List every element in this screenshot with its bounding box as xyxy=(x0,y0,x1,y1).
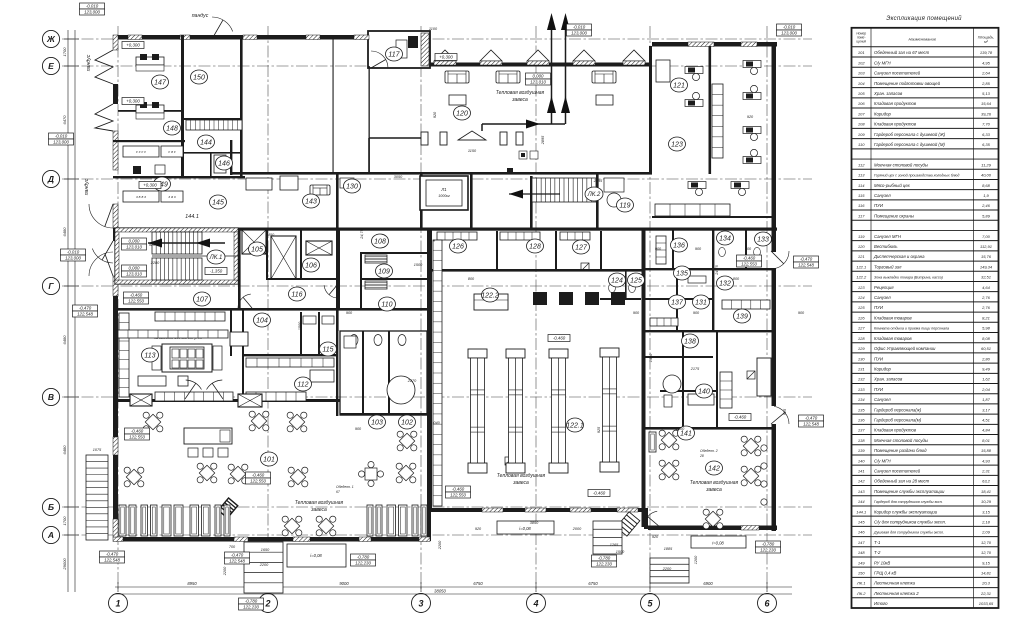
svg-text:щения: щения xyxy=(856,40,866,44)
svg-text:8,01: 8,01 xyxy=(982,438,990,443)
svg-text:С/у МГН: С/у МГН xyxy=(874,60,892,65)
svg-text:Моечная столовой посуды: Моечная столовой посуды xyxy=(874,438,929,443)
svg-text:107: 107 xyxy=(196,297,209,304)
svg-text:Гардероб персонала с душевой (: Гардероб персонала с душевой (Ж) xyxy=(874,132,946,137)
svg-text:ПУИ: ПУИ xyxy=(874,356,884,361)
svg-text:103: 103 xyxy=(858,71,865,76)
svg-text:3050: 3050 xyxy=(394,175,403,179)
svg-text:6750: 6750 xyxy=(588,581,598,586)
svg-text:-0,470: -0,470 xyxy=(79,306,92,311)
svg-text:2200: 2200 xyxy=(259,563,269,567)
svg-text:2200: 2200 xyxy=(438,540,442,550)
svg-text:132: 132 xyxy=(858,377,865,382)
svg-text:7,70: 7,70 xyxy=(982,122,991,127)
svg-text:0,000: 0,000 xyxy=(129,266,141,271)
svg-text:Помещение раздачи блюд: Помещение раздачи блюд xyxy=(874,448,927,453)
svg-text:123,010: 123,010 xyxy=(126,272,142,277)
svg-text:900: 900 xyxy=(633,311,640,315)
svg-text:6,33: 6,33 xyxy=(982,132,991,137)
svg-text:144.1: 144.1 xyxy=(185,214,199,220)
svg-text:-1,350: -1,350 xyxy=(210,269,223,274)
svg-text:920: 920 xyxy=(652,535,659,539)
svg-text:Санузел: Санузел xyxy=(874,397,891,402)
svg-text:2895: 2895 xyxy=(541,135,545,145)
svg-text:Лестничная клетка: Лестничная клетка xyxy=(873,581,916,586)
svg-text:завеса: завеса xyxy=(512,480,529,486)
svg-text:3,17: 3,17 xyxy=(982,407,991,412)
svg-text:122,230: 122,230 xyxy=(760,548,776,553)
svg-text:115: 115 xyxy=(322,347,333,354)
svg-text:137: 137 xyxy=(671,300,684,307)
svg-text:920: 920 xyxy=(433,111,437,118)
svg-text:6750: 6750 xyxy=(473,581,483,586)
svg-text:134: 134 xyxy=(858,397,865,402)
svg-text:136: 136 xyxy=(858,417,865,422)
svg-text:-0,010: -0,010 xyxy=(573,25,586,30)
svg-text:2,09: 2,09 xyxy=(981,530,991,535)
svg-text:-0,470: -0,470 xyxy=(231,553,244,558)
svg-text:3: 3 xyxy=(418,598,423,608)
svg-text:123,000: 123,000 xyxy=(65,256,81,261)
svg-text:105: 105 xyxy=(251,247,263,254)
svg-text:1500: 1500 xyxy=(298,321,302,330)
svg-text:144: 144 xyxy=(200,140,212,147)
svg-text:Помещение охраны: Помещение охраны xyxy=(874,213,915,218)
svg-text:-0,470: -0,470 xyxy=(106,552,119,557)
svg-text:109: 109 xyxy=(858,132,865,137)
svg-text:В: В xyxy=(48,392,54,402)
svg-text:142: 142 xyxy=(858,479,865,484)
svg-text:123,000: 123,000 xyxy=(571,31,587,36)
svg-text:28: 28 xyxy=(699,454,704,458)
svg-text:101: 101 xyxy=(858,50,865,55)
svg-text:Тепловая воздушная: Тепловая воздушная xyxy=(497,473,546,479)
svg-text:с с с с: с с с с xyxy=(136,150,146,154)
svg-text:6480: 6480 xyxy=(62,445,67,455)
svg-text:122,550: 122,550 xyxy=(450,493,466,498)
svg-text:Торговый зал: Торговый зал xyxy=(874,264,902,269)
svg-text:22,31: 22,31 xyxy=(980,591,991,596)
svg-text:140: 140 xyxy=(858,458,865,463)
svg-text:150: 150 xyxy=(193,75,205,82)
svg-text:2200: 2200 xyxy=(223,566,227,576)
svg-text:ПУИ: ПУИ xyxy=(874,387,884,392)
svg-text:Коридор: Коридор xyxy=(874,366,891,371)
svg-text:920: 920 xyxy=(475,527,482,531)
svg-text:920: 920 xyxy=(747,115,754,119)
svg-text:32,51: 32,51 xyxy=(981,275,991,280)
svg-text:130: 130 xyxy=(346,184,358,191)
svg-text:3850: 3850 xyxy=(530,521,539,525)
svg-text:136: 136 xyxy=(673,243,685,250)
svg-text:-0,010: -0,010 xyxy=(783,25,796,30)
svg-text:101: 101 xyxy=(263,457,275,464)
svg-text:143: 143 xyxy=(305,199,317,206)
svg-text:38050: 38050 xyxy=(434,589,446,594)
svg-text:63,2: 63,2 xyxy=(982,479,991,484)
svg-text:5,89: 5,89 xyxy=(982,213,991,218)
svg-text:Санузел посетителей: Санузел посетителей xyxy=(874,71,921,76)
svg-text:i=0,08: i=0,08 xyxy=(519,526,531,531)
svg-text:ЛК.1: ЛК.1 xyxy=(209,255,223,261)
svg-text:Комната отдыха и приема пищи п: Комната отдыха и приема пищи персонала xyxy=(874,327,949,331)
svg-text:С/у МГН: С/у МГН xyxy=(874,458,892,463)
svg-text:122,548: 122,548 xyxy=(803,422,819,427)
svg-text:2,46: 2,46 xyxy=(981,203,991,208)
svg-text:1400: 1400 xyxy=(649,353,653,362)
svg-text:1000кг: 1000кг xyxy=(438,194,450,198)
svg-text:114: 114 xyxy=(858,183,865,188)
svg-text:122,548: 122,548 xyxy=(798,263,814,268)
svg-text:2,85: 2,85 xyxy=(981,81,991,86)
svg-text:112: 112 xyxy=(858,162,865,167)
svg-text:29000: 29000 xyxy=(62,558,67,571)
svg-text:1885: 1885 xyxy=(664,547,673,551)
svg-text:900: 900 xyxy=(745,247,752,251)
svg-text:4,93: 4,93 xyxy=(982,458,991,463)
svg-text:1150: 1150 xyxy=(468,149,477,153)
svg-text:Помещение службы эксплуатации: Помещение службы эксплуатации xyxy=(874,489,945,494)
svg-text:122,548: 122,548 xyxy=(77,312,93,317)
svg-text:144: 144 xyxy=(858,499,865,504)
svg-text:5,98: 5,98 xyxy=(982,326,991,331)
svg-text:Санузел МГН: Санузел МГН xyxy=(874,234,902,239)
svg-text:2,80: 2,80 xyxy=(981,356,991,361)
svg-text:116: 116 xyxy=(858,203,865,208)
svg-text:119: 119 xyxy=(619,203,630,210)
svg-text:110: 110 xyxy=(858,142,865,147)
svg-text:119: 119 xyxy=(858,234,865,239)
svg-text:ЛК.2: ЛК.2 xyxy=(856,591,866,596)
svg-text:122.1: 122.1 xyxy=(566,423,584,430)
svg-text:122,230: 122,230 xyxy=(355,561,371,566)
svg-text:2270: 2270 xyxy=(407,379,417,383)
svg-text:134: 134 xyxy=(719,236,731,243)
svg-text:122,548: 122,548 xyxy=(104,558,120,563)
svg-text:123,000: 123,000 xyxy=(53,140,69,145)
svg-text:140: 140 xyxy=(698,389,710,396)
svg-text:121: 121 xyxy=(673,83,685,90)
svg-text:125: 125 xyxy=(630,278,642,285)
svg-text:1,9: 1,9 xyxy=(983,193,989,198)
svg-text:Тепловая воздушная: Тепловая воздушная xyxy=(496,90,545,96)
svg-text:24,75: 24,75 xyxy=(715,264,719,275)
svg-text:1265: 1265 xyxy=(610,543,619,547)
svg-text:1650: 1650 xyxy=(261,548,270,552)
svg-text:Кладовая продуктов: Кладовая продуктов xyxy=(874,122,917,127)
svg-text:6480: 6480 xyxy=(62,335,67,345)
svg-text:2295: 2295 xyxy=(593,179,603,183)
svg-text:108: 108 xyxy=(374,239,386,246)
svg-text:1700: 1700 xyxy=(62,516,67,526)
svg-text:А: А xyxy=(47,530,54,540)
svg-text:900: 900 xyxy=(346,311,353,315)
svg-text:128: 128 xyxy=(858,336,865,341)
svg-text:14,81: 14,81 xyxy=(981,571,991,576)
svg-text:900: 900 xyxy=(798,311,805,315)
svg-text:-0,780: -0,780 xyxy=(598,556,611,561)
svg-text:129: 129 xyxy=(858,346,865,351)
svg-text:123: 123 xyxy=(858,285,865,290)
svg-text:1: 1 xyxy=(115,598,120,608)
svg-text:3,15: 3,15 xyxy=(982,509,991,514)
svg-text:с в с: с в с xyxy=(168,150,176,154)
svg-text:Коридор службы эксплуатации: Коридор службы эксплуатации xyxy=(874,509,938,514)
svg-text:2175: 2175 xyxy=(690,367,700,371)
svg-text:завеса: завеса xyxy=(705,487,722,493)
svg-text:123,010: 123,010 xyxy=(530,80,546,85)
svg-text:141: 141 xyxy=(680,431,692,438)
svg-text:125: 125 xyxy=(858,305,865,310)
svg-text:4,64: 4,64 xyxy=(982,285,991,290)
svg-text:12,70: 12,70 xyxy=(981,550,992,555)
svg-text:2,76: 2,76 xyxy=(981,305,991,310)
svg-text:завеса: завеса xyxy=(511,97,528,103)
svg-text:6,35: 6,35 xyxy=(982,142,991,147)
svg-text:2,04: 2,04 xyxy=(981,387,991,392)
svg-text:150: 150 xyxy=(858,571,865,576)
svg-text:117: 117 xyxy=(858,213,865,218)
svg-text:Л1: Л1 xyxy=(440,187,446,192)
svg-text:ПУИ: ПУИ xyxy=(874,203,884,208)
svg-text:103: 103 xyxy=(371,420,383,427)
svg-text:128: 128 xyxy=(529,244,541,251)
svg-text:148: 148 xyxy=(166,126,178,133)
svg-text:144.1: 144.1 xyxy=(856,509,866,514)
svg-text:Т-1: Т-1 xyxy=(874,540,881,545)
svg-text:5,13: 5,13 xyxy=(982,91,991,96)
svg-text:122.2: 122.2 xyxy=(481,293,499,300)
svg-text:-0,780: -0,780 xyxy=(762,542,775,547)
svg-text:147: 147 xyxy=(154,80,167,87)
svg-text:15,76: 15,76 xyxy=(981,254,992,259)
svg-text:7,00: 7,00 xyxy=(982,234,991,239)
svg-text:130: 130 xyxy=(858,356,865,361)
svg-text:Санузел: Санузел xyxy=(874,193,891,198)
svg-text:39,26: 39,26 xyxy=(981,111,992,116)
svg-text:139: 139 xyxy=(858,448,865,453)
svg-text:120: 120 xyxy=(456,111,468,118)
svg-text:Г: Г xyxy=(48,281,54,291)
svg-text:1,87: 1,87 xyxy=(982,397,991,402)
svg-text:Д: Д xyxy=(47,174,54,184)
svg-text:пандус: пандус xyxy=(84,178,90,195)
svg-text:8,68: 8,68 xyxy=(982,183,991,188)
svg-text:6480: 6480 xyxy=(62,227,67,237)
svg-text:Наименование: Наименование xyxy=(908,37,936,42)
svg-text:2850: 2850 xyxy=(265,233,275,237)
svg-text:102: 102 xyxy=(858,60,865,65)
svg-text:123: 123 xyxy=(671,142,683,149)
svg-text:Кладовая продуктов: Кладовая продуктов xyxy=(874,101,917,106)
svg-text:122,550: 122,550 xyxy=(250,479,266,484)
svg-text:-0,470: -0,470 xyxy=(805,416,818,421)
svg-text:Душевая для сотрудников службы: Душевая для сотрудников службы экспл. xyxy=(873,531,944,535)
svg-text:122.1: 122.1 xyxy=(856,264,866,269)
svg-text:Горячий цех с зоной производст: Горячий цех с зоной производства холодны… xyxy=(874,174,959,178)
svg-text:1,040: 1,040 xyxy=(430,421,440,425)
svg-text:Моечная столовой посуды: Моечная столовой посуды xyxy=(874,162,929,167)
svg-text:40,00: 40,00 xyxy=(981,173,992,178)
svg-text:105: 105 xyxy=(858,91,865,96)
svg-text:Итого: Итого xyxy=(874,601,888,606)
svg-text:Вестибюль: Вестибюль xyxy=(874,244,898,249)
svg-text:122,550: 122,550 xyxy=(129,435,145,440)
svg-text:123,000: 123,000 xyxy=(781,31,797,36)
svg-text:124: 124 xyxy=(858,295,865,300)
svg-text:-0,780: -0,780 xyxy=(245,599,258,604)
svg-text:Хран. запасов: Хран. запасов xyxy=(873,377,903,382)
svg-text:Кладовая товаров: Кладовая товаров xyxy=(874,336,912,341)
svg-text:122,230: 122,230 xyxy=(596,562,612,567)
svg-text:133: 133 xyxy=(757,237,769,244)
svg-text:120: 120 xyxy=(858,244,865,249)
svg-text:-0,460: -0,460 xyxy=(734,415,747,420)
svg-text:Т-2: Т-2 xyxy=(874,550,881,555)
svg-text:-0,010: -0,010 xyxy=(55,134,68,139)
svg-text:122.2: 122.2 xyxy=(856,275,867,280)
svg-text:900: 900 xyxy=(655,247,662,251)
svg-text:2200: 2200 xyxy=(662,567,672,571)
svg-text:Зона выкладки товара (Витрина,: Зона выкладки товара (Витрина, касса) xyxy=(874,276,943,280)
svg-text:124: 124 xyxy=(611,278,623,285)
svg-text:пандус: пандус xyxy=(192,13,209,19)
svg-text:60,51: 60,51 xyxy=(981,346,991,351)
svg-text:4: 4 xyxy=(532,598,538,608)
svg-text:Офис Управляющей компании: Офис Управляющей компании xyxy=(874,346,936,351)
svg-text:12,70: 12,70 xyxy=(981,540,992,545)
svg-text:1500: 1500 xyxy=(616,550,625,554)
svg-text:107: 107 xyxy=(858,111,865,116)
svg-text:920: 920 xyxy=(149,243,156,247)
svg-text:Е: Е xyxy=(48,61,54,71)
svg-text:112,91: 112,91 xyxy=(980,244,992,249)
svg-text:800: 800 xyxy=(468,277,475,281)
svg-text:6900: 6900 xyxy=(703,581,713,586)
svg-text:121: 121 xyxy=(858,254,865,259)
svg-text:Санузел: Санузел xyxy=(874,295,891,300)
svg-text:-0,460: -0,460 xyxy=(553,336,566,341)
svg-text:з а з: з а з xyxy=(167,195,176,199)
svg-text:ЛК.1: ЛК.1 xyxy=(856,581,865,586)
svg-text:Гардероб персонала(м): Гардероб персонала(м) xyxy=(874,417,922,422)
svg-text:138: 138 xyxy=(684,339,696,346)
svg-text:102: 102 xyxy=(401,420,413,427)
svg-text:149: 149 xyxy=(858,560,865,565)
svg-text:пандус: пандус xyxy=(86,54,92,71)
svg-text:Б: Б xyxy=(48,502,54,512)
svg-text:123,010: 123,010 xyxy=(126,245,142,250)
svg-text:109: 109 xyxy=(378,269,390,276)
svg-text:1300: 1300 xyxy=(676,427,685,431)
svg-text:Гардероб персонала с душевой (: Гардероб персонала с душевой (М) xyxy=(874,142,945,147)
svg-text:122,230: 122,230 xyxy=(243,605,259,610)
svg-text:133: 133 xyxy=(858,387,865,392)
svg-text:127: 127 xyxy=(575,245,588,252)
svg-text:9,15: 9,15 xyxy=(982,560,991,565)
svg-text:ЛК.2: ЛК.2 xyxy=(587,192,601,198)
svg-text:106: 106 xyxy=(305,263,317,270)
svg-text:925: 925 xyxy=(783,408,787,415)
svg-text:142: 142 xyxy=(708,466,720,473)
svg-text:1700: 1700 xyxy=(62,47,67,57)
svg-text:2,31: 2,31 xyxy=(981,468,990,473)
svg-text:122,550: 122,550 xyxy=(128,299,144,304)
svg-text:113: 113 xyxy=(858,173,865,178)
svg-text:900: 900 xyxy=(355,427,362,431)
svg-text:0,000: 0,000 xyxy=(129,239,141,244)
svg-text:Гардероб для сотрудников служб: Гардероб для сотрудников службы эксп. xyxy=(874,500,943,504)
svg-text:1033,65: 1033,65 xyxy=(979,601,994,606)
svg-text:8,21: 8,21 xyxy=(982,315,990,320)
svg-text:Лестничная клетка 2: Лестничная клетка 2 xyxy=(873,591,919,596)
svg-text:113: 113 xyxy=(144,353,155,360)
svg-text:1500: 1500 xyxy=(414,263,423,267)
svg-text:122,548: 122,548 xyxy=(229,559,245,564)
svg-text:-0,010: -0,010 xyxy=(86,4,99,9)
svg-text:С/у для сотрудников службы экс: С/у для сотрудников службы экспл. xyxy=(874,520,946,525)
svg-text:1075: 1075 xyxy=(93,448,102,452)
svg-text:Тепловая воздушная: Тепловая воздушная xyxy=(295,500,344,506)
svg-text:112: 112 xyxy=(297,382,308,389)
svg-text:104: 104 xyxy=(256,318,268,325)
svg-text:i=0,08: i=0,08 xyxy=(712,541,724,546)
svg-text:завеса: завеса xyxy=(310,507,327,513)
svg-text:11,29: 11,29 xyxy=(981,162,991,167)
svg-text:115: 115 xyxy=(858,193,865,198)
svg-text:131: 131 xyxy=(858,366,865,371)
svg-text:67: 67 xyxy=(336,490,340,494)
svg-text:Помещение подготовки овощей: Помещение подготовки овощей xyxy=(874,81,941,86)
svg-text:15,88: 15,88 xyxy=(981,448,992,453)
svg-text:126: 126 xyxy=(858,315,865,320)
svg-text:15,64: 15,64 xyxy=(981,101,992,106)
svg-text:Гардероб персонала(ж): Гардероб персонала(ж) xyxy=(874,407,922,412)
svg-text:1200: 1200 xyxy=(694,555,698,564)
svg-text:146: 146 xyxy=(218,161,230,168)
svg-text:141: 141 xyxy=(858,468,865,473)
svg-text:132: 132 xyxy=(719,281,731,288)
svg-text:-0,460: -0,460 xyxy=(252,473,265,478)
svg-text:i=0,08: i=0,08 xyxy=(310,553,322,558)
svg-text:з в в з: з в в з xyxy=(135,195,146,199)
svg-text:-0,470: -0,470 xyxy=(800,257,813,262)
svg-text:+0,300: +0,300 xyxy=(126,99,140,104)
svg-text:135: 135 xyxy=(676,271,688,278)
svg-text:Хран. запасов: Хран. запасов xyxy=(873,91,903,96)
svg-text:Кладовая продуктов: Кладовая продуктов xyxy=(874,428,917,433)
svg-text:+0,300: +0,300 xyxy=(439,55,453,60)
svg-text:900: 900 xyxy=(693,311,700,315)
svg-text:135: 135 xyxy=(858,407,865,412)
svg-text:20,3: 20,3 xyxy=(981,581,991,586)
svg-text:Рецепция: Рецепция xyxy=(874,285,894,290)
svg-text:Диспетчерская и охрана: Диспетчерская и охрана xyxy=(873,254,925,259)
svg-text:9,49: 9,49 xyxy=(982,366,991,371)
svg-text:+0,300: +0,300 xyxy=(126,43,140,48)
svg-text:2280: 2280 xyxy=(150,261,160,265)
svg-text:Ж: Ж xyxy=(46,34,56,44)
svg-text:Тепловая воздушная: Тепловая воздушная xyxy=(690,480,739,486)
svg-text:Экспликация помещений: Экспликация помещений xyxy=(886,15,962,22)
svg-text:Мясо-рыбный цех: Мясо-рыбный цех xyxy=(874,183,911,188)
svg-text:10,29: 10,29 xyxy=(981,499,992,504)
svg-text:800: 800 xyxy=(733,277,740,281)
svg-text:145: 145 xyxy=(212,200,224,207)
svg-text:ГРЩ 0,4 кВ: ГРЩ 0,4 кВ xyxy=(874,571,897,576)
svg-text:0,000: 0,000 xyxy=(533,74,545,79)
svg-text:Обеденный зал на 28 мест: Обеденный зал на 28 мест xyxy=(874,479,930,484)
